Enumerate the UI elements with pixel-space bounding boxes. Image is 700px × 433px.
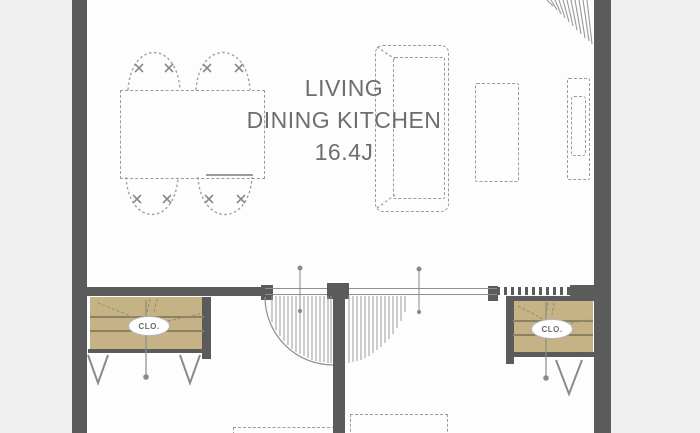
closet-left-bottom-wall [88,349,207,353]
bedroom-right-furniture [350,414,448,433]
kitchen-fixture-inner [571,96,586,156]
dining-table-edge [206,174,253,176]
bedroom-left-furniture [233,427,335,433]
closet-right-bottom-wall [506,352,594,357]
floor-plan: LIVING DINING KITCHEN 16.4J CLO. CLO. [0,0,700,433]
wall-right [594,0,611,433]
room-name-line1: LIVING [238,72,450,104]
closet-left-badge: CLO. [128,316,170,336]
sliding-door-track [497,287,570,295]
closet-left-label: CLO. [138,322,159,331]
kitchen-counter [475,83,519,182]
room-area: 16.4J [238,136,450,168]
room-name-line2: DINING KITCHEN [238,104,450,136]
closet-right-badge: CLO. [531,319,573,339]
closet-left-side-wall [202,297,211,359]
closet-right-label: CLO. [541,325,562,334]
room-label: LIVING DINING KITCHEN 16.4J [238,72,450,168]
door-jamb-left [261,285,273,300]
wall-left [72,0,87,433]
wall-ldk-bottom [87,287,263,296]
closet-right-top-wall [506,296,594,301]
wall-center [333,296,345,433]
